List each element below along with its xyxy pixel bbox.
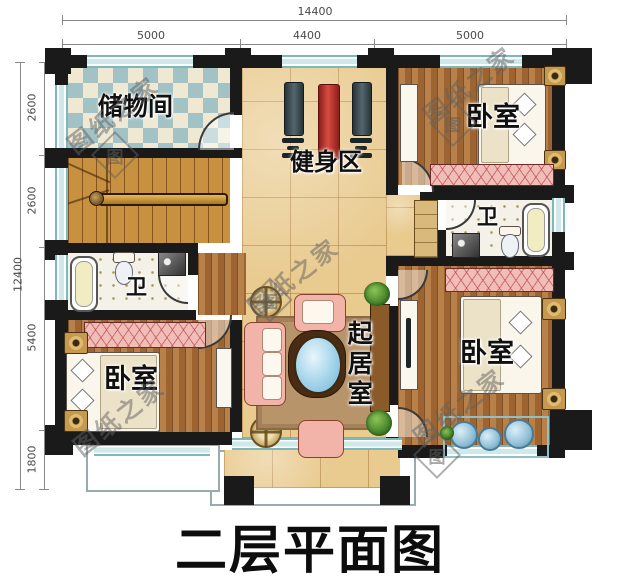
shower-east [452, 233, 480, 258]
window-west-bath [55, 255, 68, 300]
dim-tick [62, 15, 63, 25]
corridor-west-floor [198, 253, 246, 315]
sofa-cushion [262, 328, 282, 352]
dresser-ne [400, 84, 418, 162]
sofa-cushion [262, 376, 282, 400]
floor-plan-page: 14400 5000 4400 5000 12400 2600 2600 540… [0, 0, 640, 585]
column [45, 148, 67, 168]
coffee-table-glass [294, 336, 342, 394]
dim-top-seg-0: 5000 [111, 29, 191, 42]
wall-bedroom-ne-south [386, 185, 398, 195]
watermark-seal-char: 图 [262, 288, 279, 313]
dim-tick [39, 489, 49, 490]
sofa-cushion [262, 352, 282, 376]
floor-pouf [298, 420, 344, 458]
wall-east [552, 55, 565, 425]
balcony-chair [504, 419, 534, 449]
label-bath-west: 卫 [126, 276, 147, 298]
wardrobe-ne [430, 164, 554, 186]
column [550, 410, 592, 450]
window-gym [282, 55, 357, 68]
gym-bench [352, 82, 372, 136]
label-gym: 健身区 [290, 150, 362, 175]
dim-tick [15, 62, 25, 63]
label-living: 起居室 [345, 320, 371, 420]
label-bedroom-ne: 卧室 [466, 104, 520, 132]
column [552, 252, 574, 270]
balcony-chair [478, 427, 502, 451]
handrail-knob [89, 191, 104, 206]
tv-screen-se [406, 318, 411, 368]
watermark-seal-char: 图 [107, 143, 124, 168]
wall-bedroom-se-west [386, 262, 398, 276]
watermark-seal-char: 图 [445, 111, 462, 136]
window-west-stairs [55, 168, 68, 240]
tv-cabinet-sw [216, 348, 232, 408]
wardrobe-sw [84, 322, 206, 348]
wall-bathw-east [188, 243, 198, 275]
nightstand-se [542, 388, 566, 410]
bathtub-west [70, 256, 98, 312]
shower-west [158, 252, 186, 276]
bathtub-east [522, 203, 550, 257]
dim-left-seg-3: 1800 [26, 430, 39, 490]
column [225, 48, 251, 68]
nightstand-ne [544, 66, 566, 86]
balcony-column [224, 476, 254, 505]
dim-top-seg-1: 4400 [267, 29, 347, 42]
dim-top-total: 14400 [265, 5, 365, 18]
dim-top-total-line [62, 20, 567, 21]
stair-handrail [98, 193, 228, 206]
column [368, 48, 394, 68]
column [45, 48, 71, 74]
nightstand-sw [64, 332, 88, 354]
window-east-bath [552, 198, 565, 232]
bathtub-basin [75, 261, 93, 307]
dim-left-seg-1: 2600 [26, 171, 39, 231]
dim-left-seg-0: 2600 [26, 78, 39, 138]
gym-rack-bar [350, 138, 372, 143]
nightstand-se [542, 298, 566, 320]
tv-cabinet-living [370, 304, 390, 412]
balcony-column [380, 476, 410, 505]
closet-corridor [414, 200, 438, 258]
dim-tick [566, 15, 567, 25]
armchair-cushion [302, 300, 334, 324]
dim-tick [15, 489, 25, 490]
window-storage [87, 55, 193, 68]
wardrobe-se [445, 268, 554, 292]
toilet-east [501, 234, 519, 258]
plan-title: 二层平面图 [70, 508, 550, 583]
watermark-seal-char: 图 [429, 443, 446, 468]
dim-left-seg-2: 5400 [26, 308, 39, 368]
column [45, 300, 67, 320]
plant [364, 282, 390, 306]
bathtub-basin [527, 208, 545, 252]
wall-bedroom-ne-west [386, 55, 398, 192]
bay-window [94, 444, 210, 456]
gym-rack-bar [282, 138, 304, 143]
wall-bathe-north [420, 192, 565, 200]
dim-left-total: 12400 [12, 245, 25, 305]
label-bath-east: 卫 [477, 206, 498, 228]
gym-bench [284, 82, 304, 136]
